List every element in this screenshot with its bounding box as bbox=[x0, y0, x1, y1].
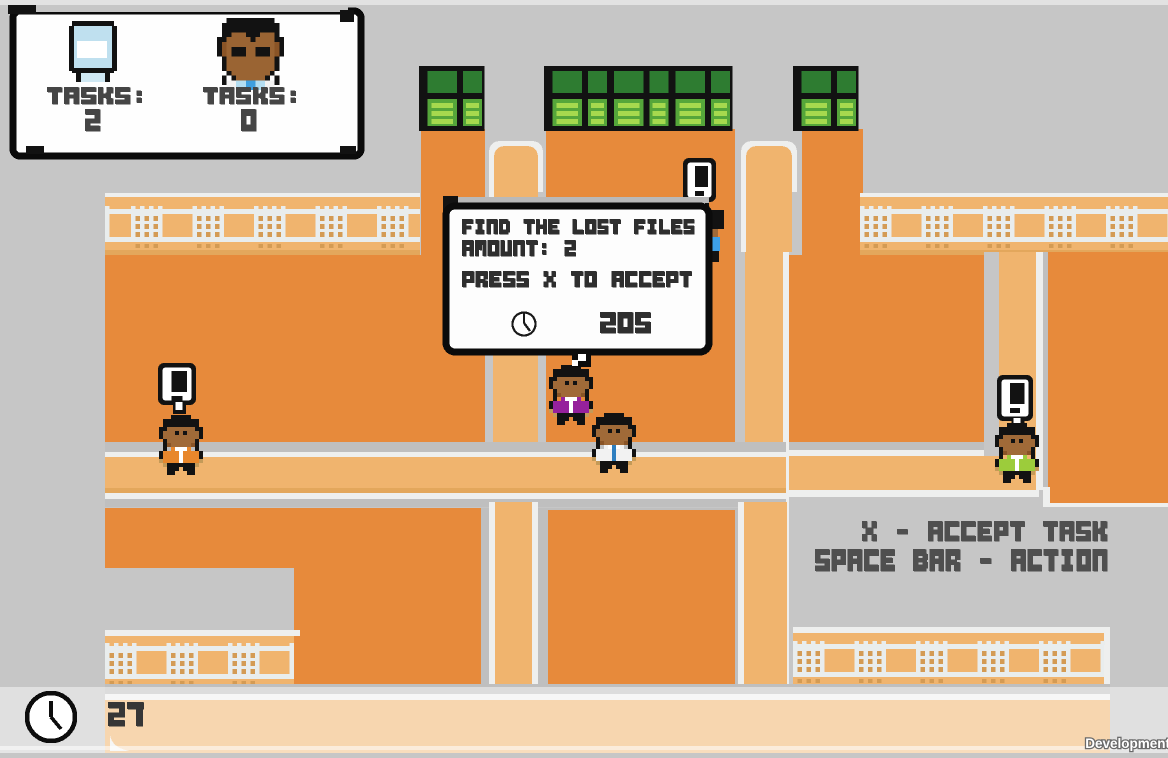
svg-text:Development: Development bbox=[1085, 736, 1168, 751]
